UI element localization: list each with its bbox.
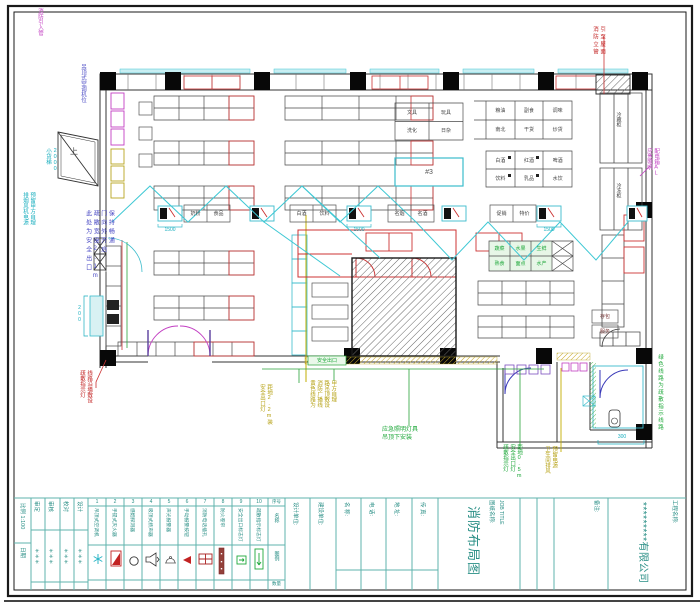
legend-name: 感烟探测器: [129, 508, 136, 532]
annotation-text: 门向外开启: [99, 210, 106, 282]
annotation-text: 疏散宽度2.1m: [92, 210, 99, 282]
shelf-rows-right: [478, 281, 574, 338]
table-cell: 白酒: [290, 205, 313, 222]
fire-extinguisher-icon: [111, 551, 121, 566]
legend-row-header: 名称: [273, 513, 279, 523]
scale-label: 比例 1:100: [19, 503, 27, 529]
fire-shutter-icon: [219, 548, 224, 574]
sign-header: 审核: [47, 501, 55, 512]
aisle-dim: 1500: [537, 227, 561, 233]
table-cell: 熟食: [489, 256, 510, 271]
annotation-text: 小货梯: [45, 148, 51, 172]
legend-name: 吊顶式空调机: [93, 508, 100, 537]
annotation-text: 排烟风机电源: [22, 192, 28, 225]
legend-no: 4: [142, 499, 160, 505]
table-cell: 特价: [513, 205, 536, 222]
annotation-text: 线路沿墙敷设: [86, 370, 92, 403]
sign-value: ＊＊＊: [76, 548, 84, 565]
legend-row-header: 数量: [268, 581, 285, 587]
table-cell: 水产: [531, 256, 552, 271]
legend-name: 声光报警器: [165, 508, 172, 532]
table-cell: 面点: [510, 256, 531, 271]
legend-row-header: 序号: [268, 499, 285, 505]
aisle-pair: 促销 特价: [490, 205, 536, 222]
sign-value: ＊＊＊: [62, 548, 70, 565]
annotation-text: 配电箱AL: [653, 148, 659, 177]
annotation-text: 绿色线路为疏散指示线路: [657, 354, 663, 431]
project-name-label: 工程名称:: [671, 500, 679, 524]
annex-mat-hatch: [557, 353, 590, 360]
table-a: 文具 玩具 洗化 日杂: [395, 103, 463, 140]
table-cell: 日杂: [429, 122, 463, 141]
field-label: 地 址:: [393, 502, 401, 516]
label-text: 冷藏柜: [615, 112, 621, 127]
legend-no: 10: [250, 499, 268, 505]
shelf-red-cells-left: [194, 96, 254, 356]
annotation-ceiling-ac: 吊顶式空调机位: [80, 64, 86, 103]
freezer-label-2: 冷冻柜: [615, 183, 621, 198]
annex-dim: 300: [601, 434, 643, 440]
table-cell: 干货: [515, 120, 544, 139]
table-cell: 奶粉: [184, 205, 207, 222]
annotation-text: 黄色线路为: [309, 380, 315, 408]
table-cell: 南北: [486, 120, 515, 139]
annotation-green-c: 应急照明灯具 吊顶下安装: [382, 427, 418, 443]
exit-strip-label: 安全出口: [309, 357, 345, 364]
smoke-detector-icon: [130, 557, 138, 565]
legend-no: 3: [124, 499, 142, 505]
sign-value: ＊＊＊: [33, 548, 41, 565]
legend-no: 9: [232, 499, 250, 505]
label-text: 冷冻柜: [615, 183, 621, 198]
floor-plan-svg: [0, 0, 700, 616]
date-label: 日期: [19, 547, 27, 558]
legend-no: 5: [160, 499, 178, 505]
annotation-text: 疏散指示灯: [502, 444, 508, 479]
annex-rooms: [505, 362, 644, 444]
annotation-right-green: 绿色线路为疏散指示线路: [657, 354, 663, 431]
annotation-text: 预留电源: [551, 446, 557, 474]
legend-no: 2: [106, 499, 124, 505]
table-cell: 促销: [490, 205, 513, 222]
field-label: 名 称:: [343, 502, 351, 516]
field-label: 建设单位:: [317, 502, 325, 526]
legend-name: 疏散指示标志灯: [255, 508, 262, 542]
annotation-text: 消防引入管: [37, 8, 43, 36]
table-cell: 食品: [207, 205, 230, 222]
top-right-hatch-area: [596, 75, 630, 94]
drawing-name-label: 图纸名称:: [488, 500, 496, 524]
legend-no: 7: [196, 499, 214, 505]
service-box-label: 存包: [592, 310, 618, 323]
table-cell: 啤酒: [543, 151, 572, 169]
annotation-left-cyan: 排烟风机电源 预留甲方自理: [22, 192, 35, 225]
table-cell: 蔬菜: [489, 241, 510, 256]
ramp-label: 上: [70, 146, 78, 157]
field-label: 设计单位:: [292, 502, 300, 526]
legend-no: 8: [214, 499, 232, 505]
legend-name: 消防电话插孔: [201, 508, 208, 537]
annotation-text: 距地0.5m: [516, 444, 522, 479]
drawing-name-en: JOB TITLE: [498, 500, 504, 525]
annotation-riser: 消防立管 引至屋面: [592, 26, 605, 56]
table-cell: 饮料: [313, 205, 336, 222]
alarm-bell-icon: [165, 557, 176, 564]
table-cell: 调味: [543, 101, 572, 120]
legend-no: 1: [88, 499, 106, 505]
exit-light-icon: [237, 556, 246, 564]
annotation-yellow-a: 安全出口灯 距地2.2m装: [259, 384, 272, 425]
annotation-fire-inlet: 消防引入管: [37, 8, 43, 36]
annotation-text: 此处为安全出口: [84, 210, 91, 282]
annotation-text: 卫生间排风: [544, 446, 550, 474]
sign-header: 校对: [62, 501, 70, 512]
sign-header: 审定: [33, 501, 41, 512]
annotation-exit-note: 此处为安全出口 疏散宽度2.1m 门向外开启 保持畅通: [84, 210, 113, 282]
storage-hatch-area: [352, 258, 456, 356]
annotation-text: 应急照明灯具: [382, 427, 418, 435]
call-point-icon: [183, 556, 191, 564]
cyan-area-label: #3: [395, 158, 463, 186]
annotation-text: 预留甲方自理: [29, 192, 35, 225]
annotation-text: 距地2.2m装: [266, 384, 272, 425]
cashier-dim: 200: [76, 305, 82, 323]
dim-text: 200: [76, 305, 82, 323]
annotation-text: 2000: [52, 148, 58, 172]
annotation-yellow-b: 黄色线路为 消防广播线 路吊顶敷设 甲方自理: [309, 380, 336, 408]
annotation-text: 应急照明: [646, 148, 652, 177]
table-cell: 名烟: [388, 205, 411, 222]
annotation-left-red: 疏散指示灯 线路沿墙敷设: [79, 370, 92, 403]
legend-row-header: 图例: [273, 551, 279, 561]
remarks-label: 备注:: [593, 500, 601, 513]
table-cell: 玩具: [429, 103, 463, 122]
annotation-green-d: 疏散指示灯 安全出口灯 距地0.5m: [502, 444, 522, 479]
table-c: 白酒 红酒 啤酒 饮料 乳品 水饮: [486, 151, 572, 187]
legend-no: 6: [178, 499, 196, 505]
legend-name: 吸顶式扬声器: [147, 508, 154, 537]
annotation-freight-lift: 小货梯 2000: [45, 148, 58, 172]
table-cell: 文具: [395, 103, 429, 122]
legend-name: 防火卷帘: [219, 508, 226, 527]
table-b: 粮油 副食 调味 南北 干货 炒货: [486, 101, 572, 139]
aisle-dim: 1500: [158, 227, 182, 233]
table-cell: 乳品: [515, 169, 544, 187]
sign-value: ＊＊＊: [47, 548, 55, 565]
annotation-text: 消防广播线: [316, 380, 322, 408]
direction-light-icon: [255, 549, 263, 569]
table-cell: 洗化: [395, 122, 429, 141]
aisle-pair: 白酒 饮料: [290, 205, 336, 222]
annotation-text: 甲方自理: [330, 380, 336, 408]
table-cell: 生鲜: [531, 241, 552, 256]
entrance-doors: [148, 326, 210, 356]
annotation-text: 吊顶下安装: [382, 435, 418, 443]
annotation-text: 路吊顶敷设: [323, 380, 329, 408]
table-cell: 白酒: [486, 151, 515, 169]
table-cell: 名酒: [411, 205, 434, 222]
legend-name: 手动报警按钮: [183, 508, 190, 537]
annotation-text: 保持畅通: [107, 210, 114, 282]
annotation-text: 消防立管: [592, 26, 598, 56]
company-name: *********有限公司: [637, 502, 652, 584]
table-cell: 粮油: [486, 101, 515, 120]
annotation-text: 安全出口灯: [509, 444, 515, 479]
shelf-rows-left: [118, 96, 254, 356]
annotation-text: 吊顶式空调机位: [80, 64, 86, 103]
aisle-pair: 奶粉 食品: [184, 205, 230, 222]
table-cell: 水饮: [543, 169, 572, 187]
aisle-dim: 1500: [347, 227, 371, 233]
annotation-text: 引至屋面: [599, 26, 605, 56]
annotation-text: 安全出口灯: [259, 384, 265, 425]
table-cell: 饮料: [486, 169, 515, 187]
top-shelf-red-cells: [184, 76, 596, 89]
label-text: 图例: [273, 551, 279, 561]
field-label: 电 话:: [368, 502, 376, 516]
field-label: 传 真:: [419, 502, 427, 516]
table-cell: 水果: [510, 241, 531, 256]
drawing-title: 消防布局图: [465, 506, 484, 576]
annotation-right-magenta: 应急照明 配电箱AL: [646, 148, 659, 177]
annotation-yellow-e: 卫生间排风 预留电源: [544, 446, 557, 474]
table-cell: 炒货: [543, 120, 572, 139]
distribution-box-icon: [199, 554, 212, 564]
ac-unit-icon: [94, 554, 103, 564]
annotation-text: 疏散指示灯: [79, 370, 85, 403]
freezer-label-1: 冷藏柜: [615, 112, 621, 127]
service-box-label: 服务: [592, 325, 618, 338]
freight-ramp: [58, 132, 98, 186]
aisle-pair: 名烟 名酒: [388, 205, 434, 222]
table-cell: 红酒: [515, 151, 544, 169]
left-wall-fixtures: [111, 93, 152, 198]
table-cell: 副食: [515, 101, 544, 120]
sign-header: 设计: [76, 501, 84, 512]
legend-name: 手提式灭火器: [111, 508, 118, 537]
label-text: 名称: [273, 513, 279, 523]
cad-floor-plan-sheet: 消防引入管 吊顶式空调机位 小货梯 2000 排烟风机电源 预留甲方自理 此处为…: [0, 0, 700, 616]
table-green: 蔬菜 水果 生鲜 熟食 面点 水产: [489, 241, 552, 271]
speaker-icon: [146, 553, 159, 566]
legend-name: 安全出口标志灯: [237, 508, 244, 542]
